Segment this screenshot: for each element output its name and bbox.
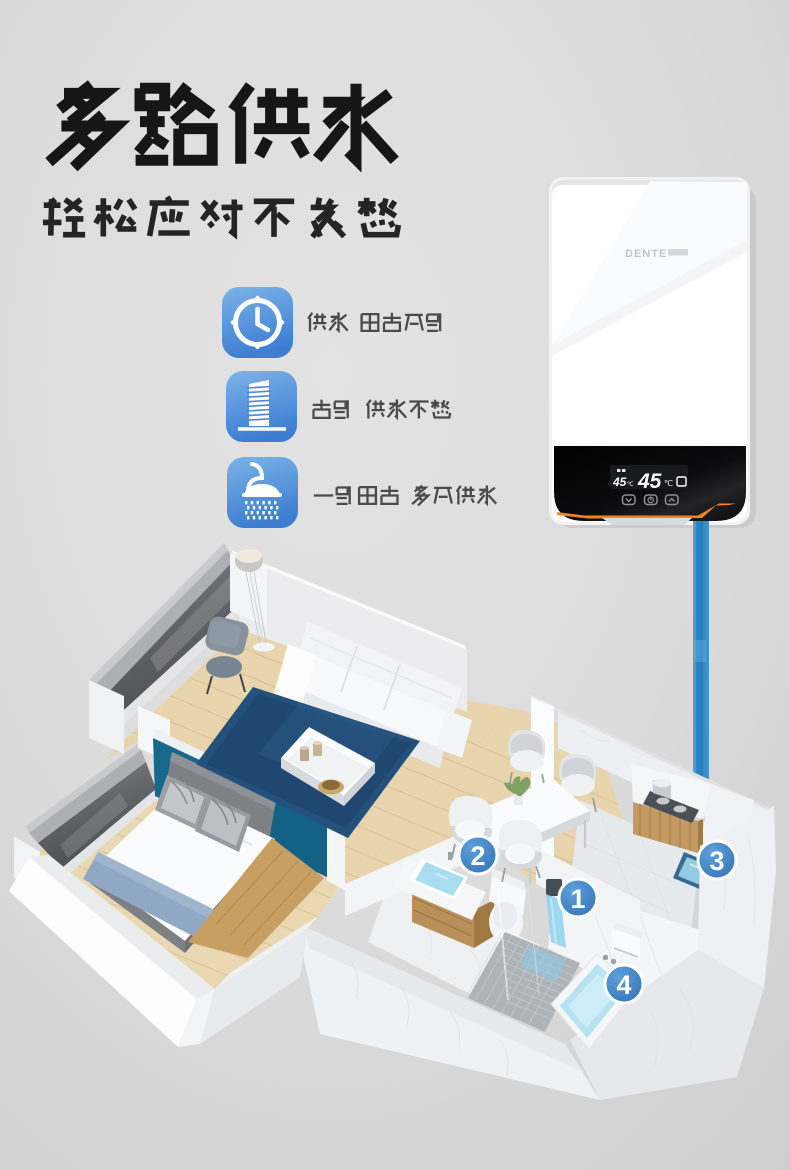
svg-text:℃: ℃	[627, 482, 634, 488]
svg-text:45: 45	[612, 475, 627, 489]
svg-text:3: 3	[709, 846, 724, 876]
svg-text:DENTE: DENTE	[625, 248, 667, 260]
svg-text:1: 1	[570, 884, 585, 914]
svg-text:4: 4	[616, 970, 631, 1000]
svg-text:45: 45	[637, 470, 662, 493]
svg-text:℃: ℃	[664, 479, 673, 488]
svg-text:2: 2	[470, 841, 485, 871]
